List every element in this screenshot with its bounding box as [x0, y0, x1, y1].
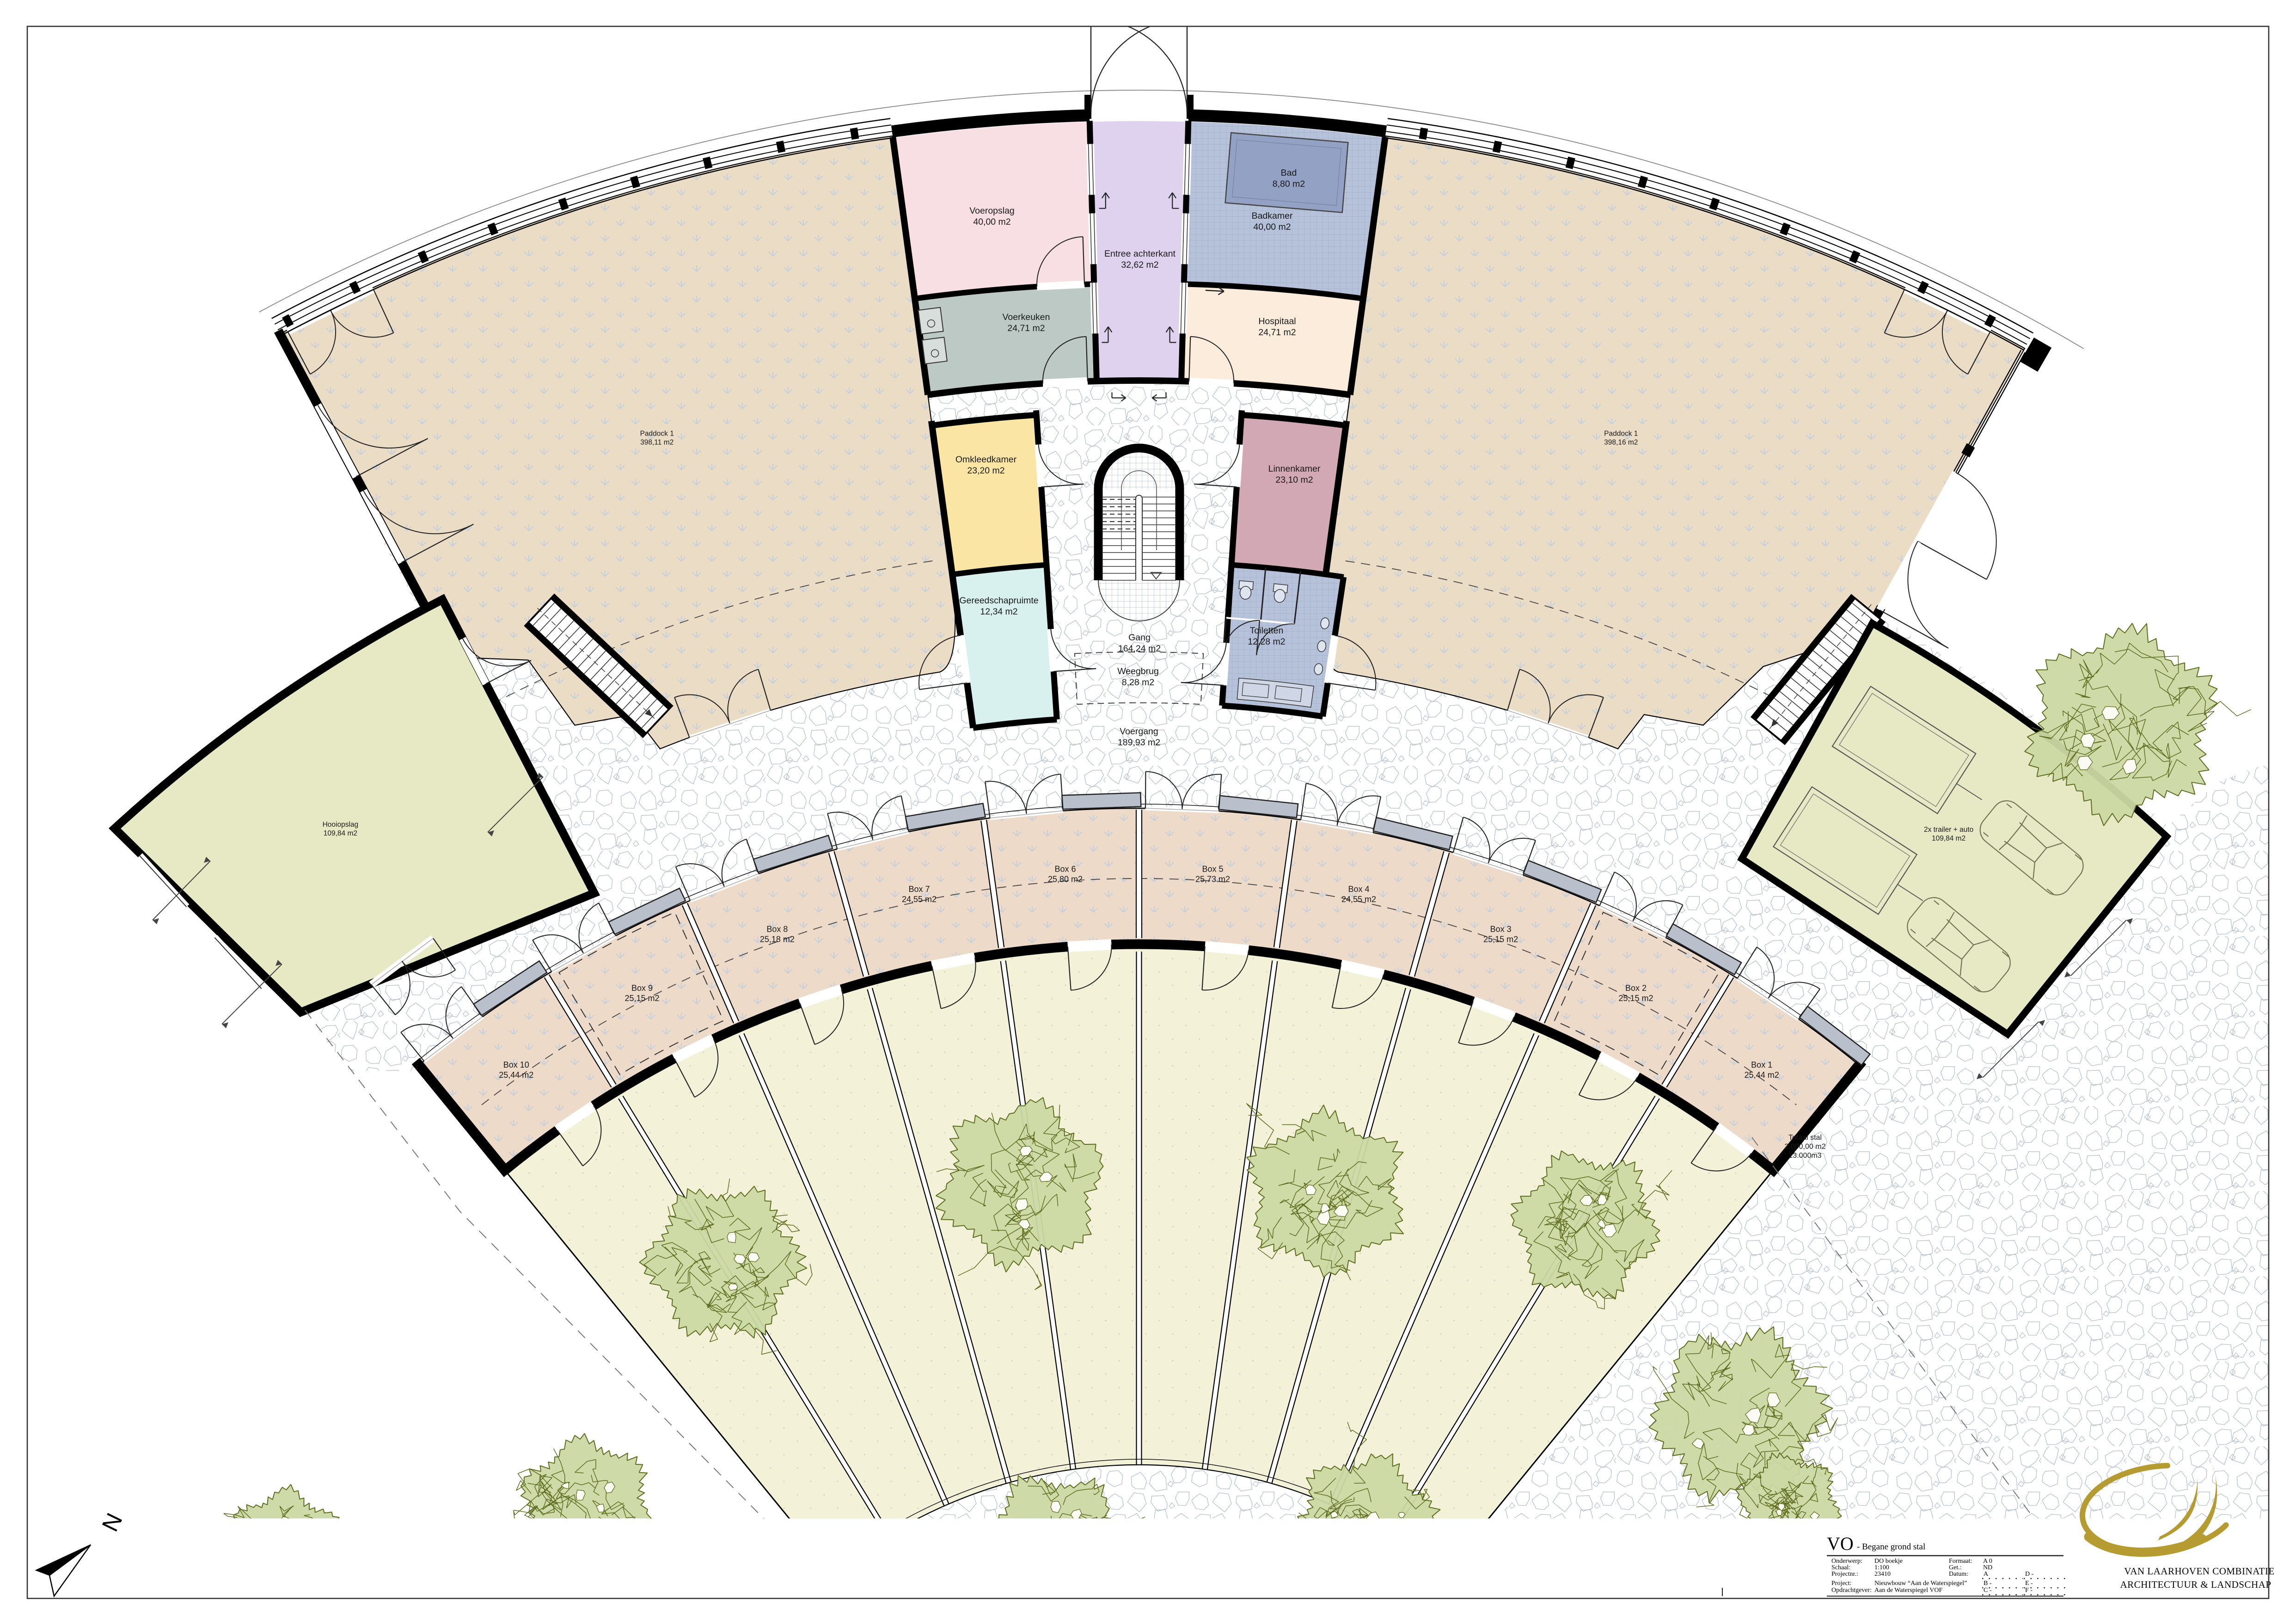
svg-text:A: A — [1984, 1571, 1989, 1578]
svg-text:Linnenkamer23,10 m2: Linnenkamer23,10 m2 — [1268, 464, 1321, 485]
svg-text:Formaat:: Formaat: — [1949, 1558, 1972, 1565]
svg-text:Nieuwbouw “Aan de Waterspiegel: Nieuwbouw “Aan de Waterspiegel” — [1874, 1580, 1967, 1587]
svg-text:Projectnr.:: Projectnr.: — [1831, 1571, 1858, 1578]
svg-text:B -: B - — [1984, 1580, 1992, 1587]
svg-text:Datum:: Datum: — [1949, 1571, 1968, 1578]
svg-text:Weegbrug8,28 m2: Weegbrug8,28 m2 — [1117, 666, 1159, 688]
svg-text:Get.:: Get.: — [1949, 1564, 1962, 1571]
svg-text:Paddock 1398,11 m2: Paddock 1398,11 m2 — [640, 430, 674, 446]
svg-text:- Begane grond stal: - Begane grond stal — [1857, 1542, 1925, 1552]
svg-text:C -: C - — [1984, 1587, 1992, 1594]
svg-text:Onderwerp:: Onderwerp: — [1831, 1558, 1862, 1565]
svg-text:Hospitaal24,71 m2: Hospitaal24,71 m2 — [1258, 316, 1296, 338]
svg-text:Schaal:: Schaal: — [1831, 1564, 1850, 1571]
svg-text:Toiletten12,28 m2: Toiletten12,28 m2 — [1248, 626, 1285, 647]
svg-text:Badkamer40,00 m2: Badkamer40,00 m2 — [1252, 211, 1293, 232]
svg-text:23410: 23410 — [1874, 1571, 1891, 1578]
svg-text:E -: E - — [2025, 1580, 2033, 1587]
svg-text:D -: D - — [2025, 1571, 2034, 1578]
svg-text:Totaal stal2.000,00 m213.000m3: Totaal stal2.000,00 m213.000m3 — [1785, 1134, 1826, 1160]
svg-text:A 0: A 0 — [1983, 1558, 1992, 1565]
svg-text:Voergang189,93 m2: Voergang189,93 m2 — [1118, 726, 1160, 748]
svg-text:Paddock 1398,16 m2: Paddock 1398,16 m2 — [1604, 430, 1638, 446]
svg-text:DO boekje: DO boekje — [1874, 1558, 1903, 1565]
svg-text:ARCHITECTUUR & LANDSCHAP: ARCHITECTUUR & LANDSCHAP — [2120, 1579, 2271, 1590]
svg-text:Project:: Project: — [1831, 1580, 1852, 1587]
svg-text:ND: ND — [1983, 1564, 1992, 1571]
svg-text:1:100: 1:100 — [1874, 1564, 1889, 1571]
svg-text:Voerkeuken24,71 m2: Voerkeuken24,71 m2 — [1003, 312, 1050, 333]
svg-text:Hooiopslag109,84 m2: Hooiopslag109,84 m2 — [323, 821, 359, 837]
svg-text:F -: F - — [2025, 1587, 2033, 1594]
svg-text:VO: VO — [1827, 1533, 1854, 1554]
svg-text:Opdrachtgever:: Opdrachtgever: — [1831, 1587, 1872, 1594]
svg-text:VAN LAARHOVEN COMBINATIE: VAN LAARHOVEN COMBINATIE — [2124, 1566, 2274, 1577]
svg-text:Aan de Waterspiegel VOF: Aan de Waterspiegel VOF — [1874, 1587, 1942, 1594]
svg-text:Voeropslag40,00 m2: Voeropslag40,00 m2 — [969, 206, 1015, 227]
